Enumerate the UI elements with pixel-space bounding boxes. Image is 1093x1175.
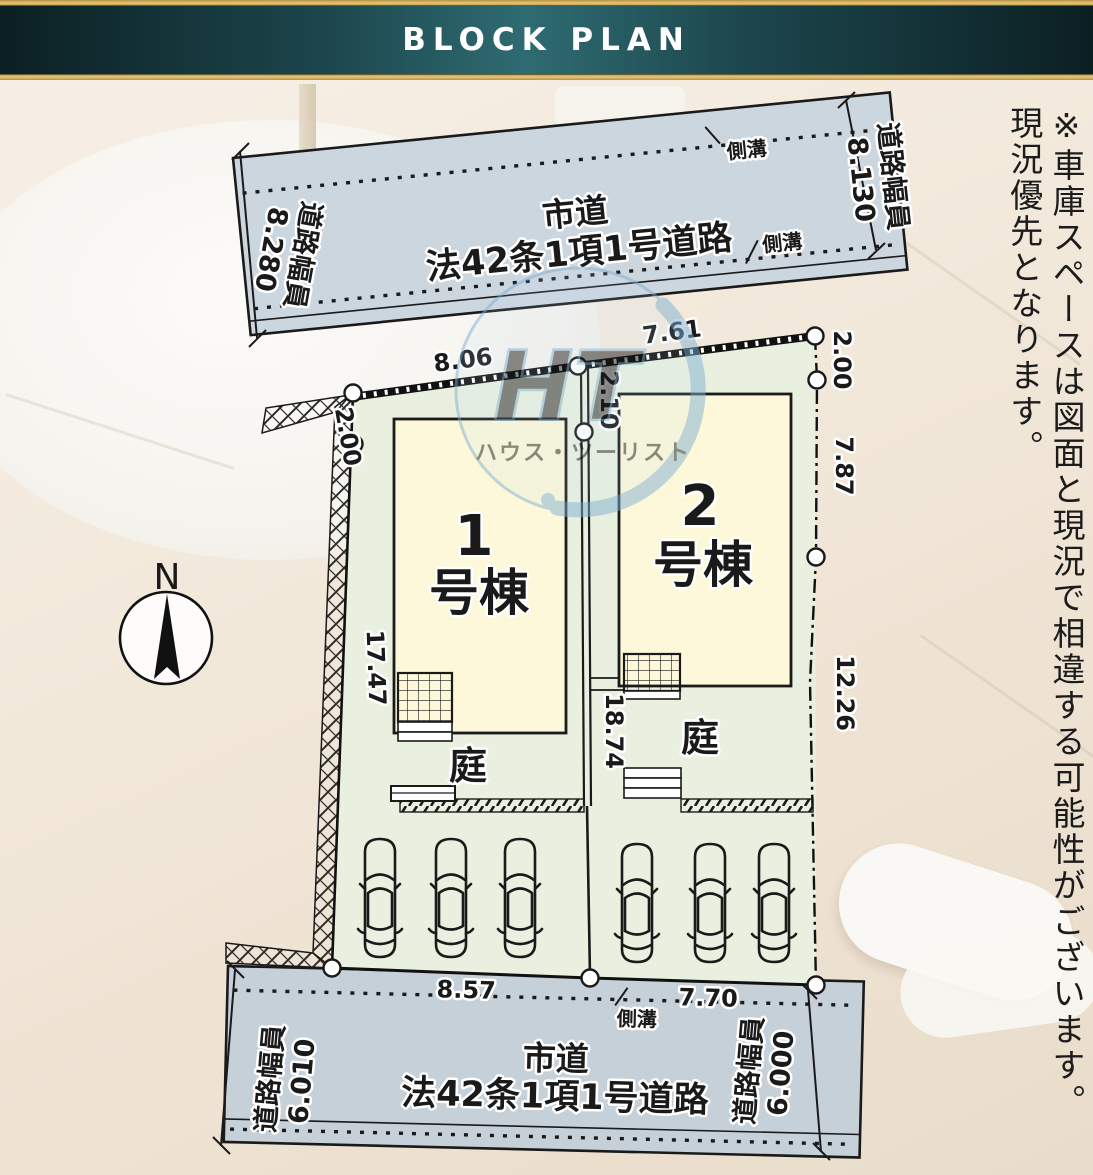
building-2-porch — [624, 654, 680, 691]
dim-center-side: 18.74 — [600, 693, 628, 769]
lot-2-garden-label: 庭 — [681, 716, 719, 760]
dim-bottom-right: 7.70 — [678, 983, 738, 1013]
compass: N — [120, 557, 212, 684]
bottom-road-gutter-label: 側溝 — [616, 1006, 658, 1031]
building-2-garden-step — [624, 788, 681, 798]
building-2-number: 2 — [681, 474, 720, 539]
lot-1-garden-label: 庭 — [449, 744, 487, 788]
building-2-garden-step — [624, 778, 681, 788]
site-plan-drawing: 市道 法42条1項1号道路 側溝 側溝 道路幅員 8.280 道路幅員 8.13… — [0, 0, 1093, 1175]
disclaimer-line-2: 現況優先となります。 — [1005, 106, 1044, 466]
building-1-porch — [398, 673, 452, 722]
building-1-number: 1 — [455, 504, 494, 569]
page-title: BLOCK PLAN — [402, 22, 691, 58]
dim-right-lower: 12.26 — [831, 655, 859, 731]
building-2-suffix: 号棟 — [653, 536, 754, 594]
top-road-gutter-label-2: 側溝 — [760, 229, 803, 257]
bottom-road-law: 法42条1項1号道路 — [401, 1073, 710, 1121]
dim-bottom-left: 8.57 — [436, 975, 496, 1005]
building-2-step — [624, 691, 680, 699]
watermark-letters: HT — [493, 331, 645, 443]
building-1-suffix: 号棟 — [429, 564, 530, 622]
building-1-step — [398, 722, 452, 732]
garden-parking-divider-2 — [681, 799, 813, 812]
dim-right-upper: 2.00 — [828, 330, 856, 389]
watermark-logo: HT ハウス・ツーリスト — [456, 268, 700, 512]
building-2-garden-step — [624, 768, 681, 778]
disclaimer-note: ※車庫スペースは図面と現況で相違する可能性がございます。 現況優先となります。 — [1003, 106, 1087, 1168]
dim-right-mid: 7.87 — [830, 436, 858, 495]
top-road-type: 市道 — [540, 190, 610, 235]
disclaimer-line-1: ※車庫スペースは図面と現況で相違する可能性がございます。 — [1047, 106, 1086, 1120]
watermark-name: ハウス・ツーリスト — [475, 441, 691, 466]
header-band: BLOCK PLAN — [0, 6, 1093, 74]
compass-north-label: N — [154, 557, 181, 598]
bottom-road-type: 市道 — [522, 1038, 589, 1079]
building-1-step — [398, 732, 452, 741]
header-banner: BLOCK PLAN — [0, 0, 1093, 80]
block-plan-page: 市道 法42条1項1号道路 側溝 側溝 道路幅員 8.280 道路幅員 8.13… — [0, 0, 1093, 1175]
dim-left-side: 17.47 — [361, 629, 392, 706]
top-road-gutter-label-1: 側溝 — [725, 136, 768, 164]
